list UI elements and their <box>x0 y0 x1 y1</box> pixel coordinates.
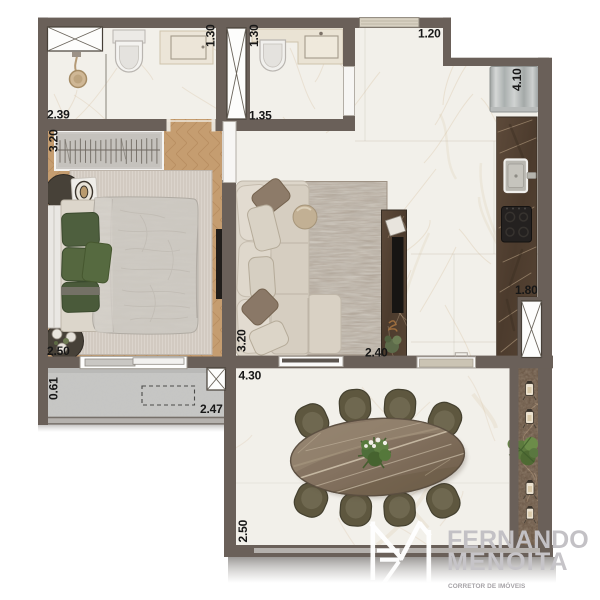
svg-text:MENOITA: MENOITA <box>447 548 569 576</box>
svg-text:CORRETOR DE IMÓVEIS: CORRETOR DE IMÓVEIS <box>448 581 526 590</box>
svg-text:1.20: 1.20 <box>418 27 441 41</box>
svg-text:3.20: 3.20 <box>235 329 249 352</box>
svg-text:4.30: 4.30 <box>239 369 262 383</box>
svg-text:4.10: 4.10 <box>510 68 524 91</box>
svg-text:2.39: 2.39 <box>47 108 70 122</box>
svg-text:2.50: 2.50 <box>236 519 250 542</box>
svg-text:3.20: 3.20 <box>47 129 61 152</box>
svg-text:1.80: 1.80 <box>515 283 538 297</box>
svg-text:1.35: 1.35 <box>249 109 272 123</box>
svg-text:1.30: 1.30 <box>247 24 261 47</box>
svg-text:1.30: 1.30 <box>204 24 218 47</box>
svg-text:0.61: 0.61 <box>47 377 61 400</box>
svg-text:2.40: 2.40 <box>365 346 388 360</box>
svg-text:2.50: 2.50 <box>47 344 70 358</box>
svg-text:2.47: 2.47 <box>200 402 223 416</box>
